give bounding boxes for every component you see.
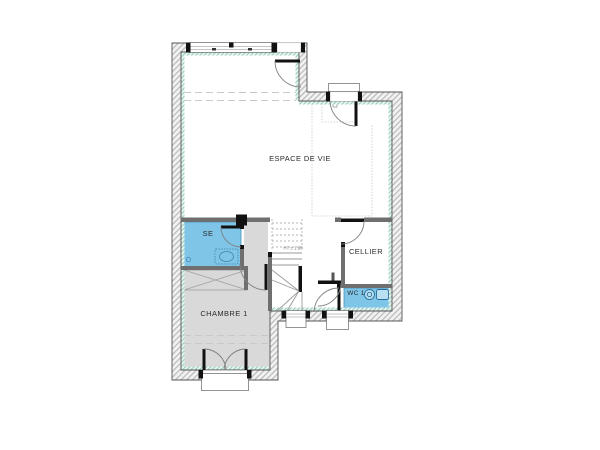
window-hall [282, 311, 311, 328]
closet-crossed [184, 270, 247, 290]
label-chambre-1: CHAMBRE 1 [200, 309, 247, 318]
door-stop-tick [332, 273, 335, 282]
wc-toilet [365, 290, 389, 300]
window-top [186, 43, 276, 53]
french-door-chambre1 [199, 370, 252, 391]
cellier-door-swing [341, 221, 364, 244]
staircase [272, 219, 302, 311]
window-wc [322, 311, 353, 330]
duct-post [236, 215, 247, 226]
label-stair-height: HT ± 1.80 [283, 246, 303, 251]
door-opening-top [273, 43, 305, 53]
label-wc-1: WC 1 [347, 290, 365, 297]
living-room-door-leaf [275, 60, 300, 63]
floor-plan-drawing: ESPACE DE VIE CHAMBRE 1 SE CELLIER WC 1 … [0, 0, 600, 450]
french-door-right-leaf [245, 349, 248, 371]
cellier-door-leaf [341, 219, 364, 223]
french-door-left-leaf [203, 349, 206, 371]
label-espace-de-vie: ESPACE DE VIE [269, 154, 331, 163]
floor-plan-page: ESPACE DE VIE CHAMBRE 1 SE CELLIER WC 1 … [0, 0, 600, 450]
chambre1-door-leaf [265, 264, 268, 290]
hall-door-leaf [318, 281, 341, 285]
se-door-leaf [221, 226, 241, 229]
entry-door-leaf [355, 100, 358, 126]
label-cellier: CELLIER [349, 247, 383, 256]
label-se: SE [203, 229, 214, 238]
entry-opening [326, 84, 362, 102]
